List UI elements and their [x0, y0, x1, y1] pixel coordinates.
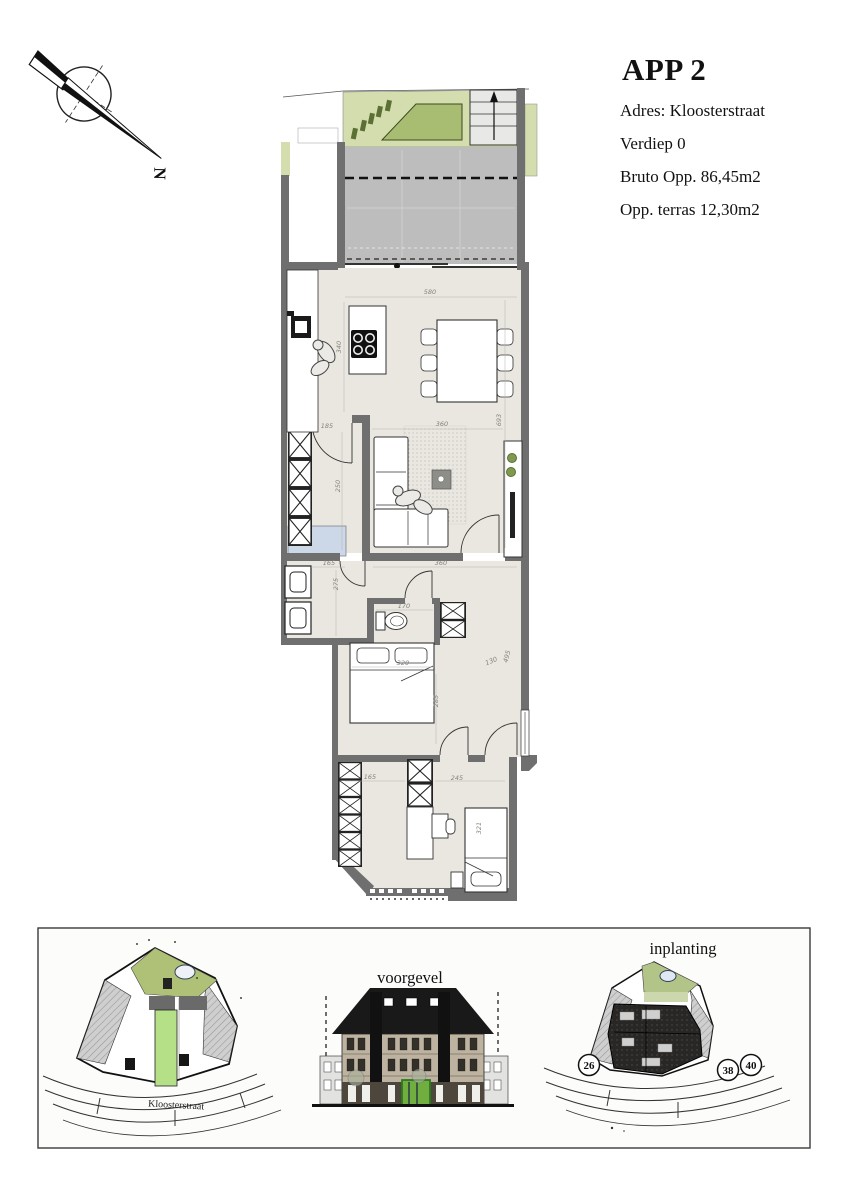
bed-double: [350, 643, 434, 723]
paved-terrace: [345, 147, 517, 264]
north-label: N: [150, 167, 169, 180]
bed-single: [465, 808, 507, 892]
highlighted-unit: [155, 1010, 177, 1086]
plant: [508, 454, 517, 463]
garden-strip-left: [281, 142, 290, 176]
dim-lounge-width: 360: [436, 420, 448, 428]
dim-wc-width: 170: [398, 602, 410, 610]
terrace-wall-right: [517, 88, 525, 270]
house-number-26: 26: [584, 1060, 596, 1072]
unit-highlight: [402, 1080, 430, 1106]
dim-bed2-length: 321: [475, 822, 483, 834]
dim-living-width: 580: [424, 288, 436, 296]
stairs: [470, 90, 517, 145]
dim-hall-width: 360: [435, 559, 447, 567]
pond: [660, 971, 676, 982]
house-number-40: 40: [746, 1060, 758, 1072]
ground-line: [312, 1104, 514, 1107]
dim-storage-door: 185: [321, 422, 333, 430]
garden-strip-right: [525, 104, 537, 176]
facade-label: voorgevel: [377, 968, 443, 987]
terrace-wall-left: [337, 142, 345, 268]
wardrobe: [407, 807, 433, 859]
house-number-38: 38: [723, 1065, 735, 1077]
inset-box: Kloosterstraat voorgevel: [38, 928, 810, 1148]
dim-bed1-width: 320: [397, 659, 409, 667]
dining-table: [437, 320, 497, 402]
pillow: [357, 648, 389, 663]
dining-set: [421, 320, 513, 402]
dim-kitchen-depth: 340: [335, 341, 343, 353]
nightstand: [451, 872, 463, 888]
dim-bed1-depth: 285: [432, 695, 440, 707]
dim-laundry-width: 165: [323, 559, 335, 567]
terrace-garden-zone: [281, 88, 537, 274]
dim-storage-depth: 250: [334, 480, 342, 492]
bush: [348, 1070, 364, 1086]
plan-sheet: APP 2 Adres: Kloosterstraat Verdiep 0 Br…: [0, 0, 848, 1200]
kitchen-island: [349, 306, 386, 374]
dim-living-length: 693: [495, 414, 503, 426]
bush: [412, 1069, 426, 1083]
dim-dressing-width: 165: [364, 773, 376, 781]
needle-point: [59, 78, 171, 159]
sideboard: [504, 441, 522, 557]
toilet: [376, 612, 407, 630]
tv-bar: [510, 492, 515, 538]
plant: [507, 468, 516, 477]
compass-rose: N: [12, 32, 202, 189]
dim-bedroom2-width: 245: [451, 774, 463, 782]
dim-laundry-depth: 275: [332, 578, 340, 590]
siteplan-label: inplanting: [650, 939, 717, 958]
floorplan-drawing: N: [0, 0, 848, 1200]
pillow: [471, 872, 501, 886]
pond: [175, 965, 195, 979]
